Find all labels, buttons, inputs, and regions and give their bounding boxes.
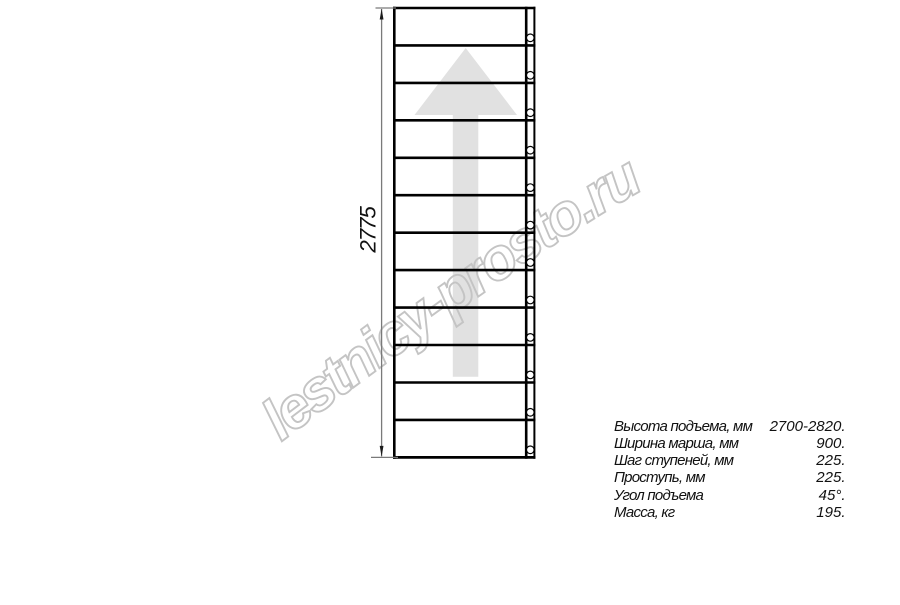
svg-text:lestnicy-prosto.ru: lestnicy-prosto.ru xyxy=(250,143,652,452)
svg-text:2775: 2775 xyxy=(356,206,381,254)
